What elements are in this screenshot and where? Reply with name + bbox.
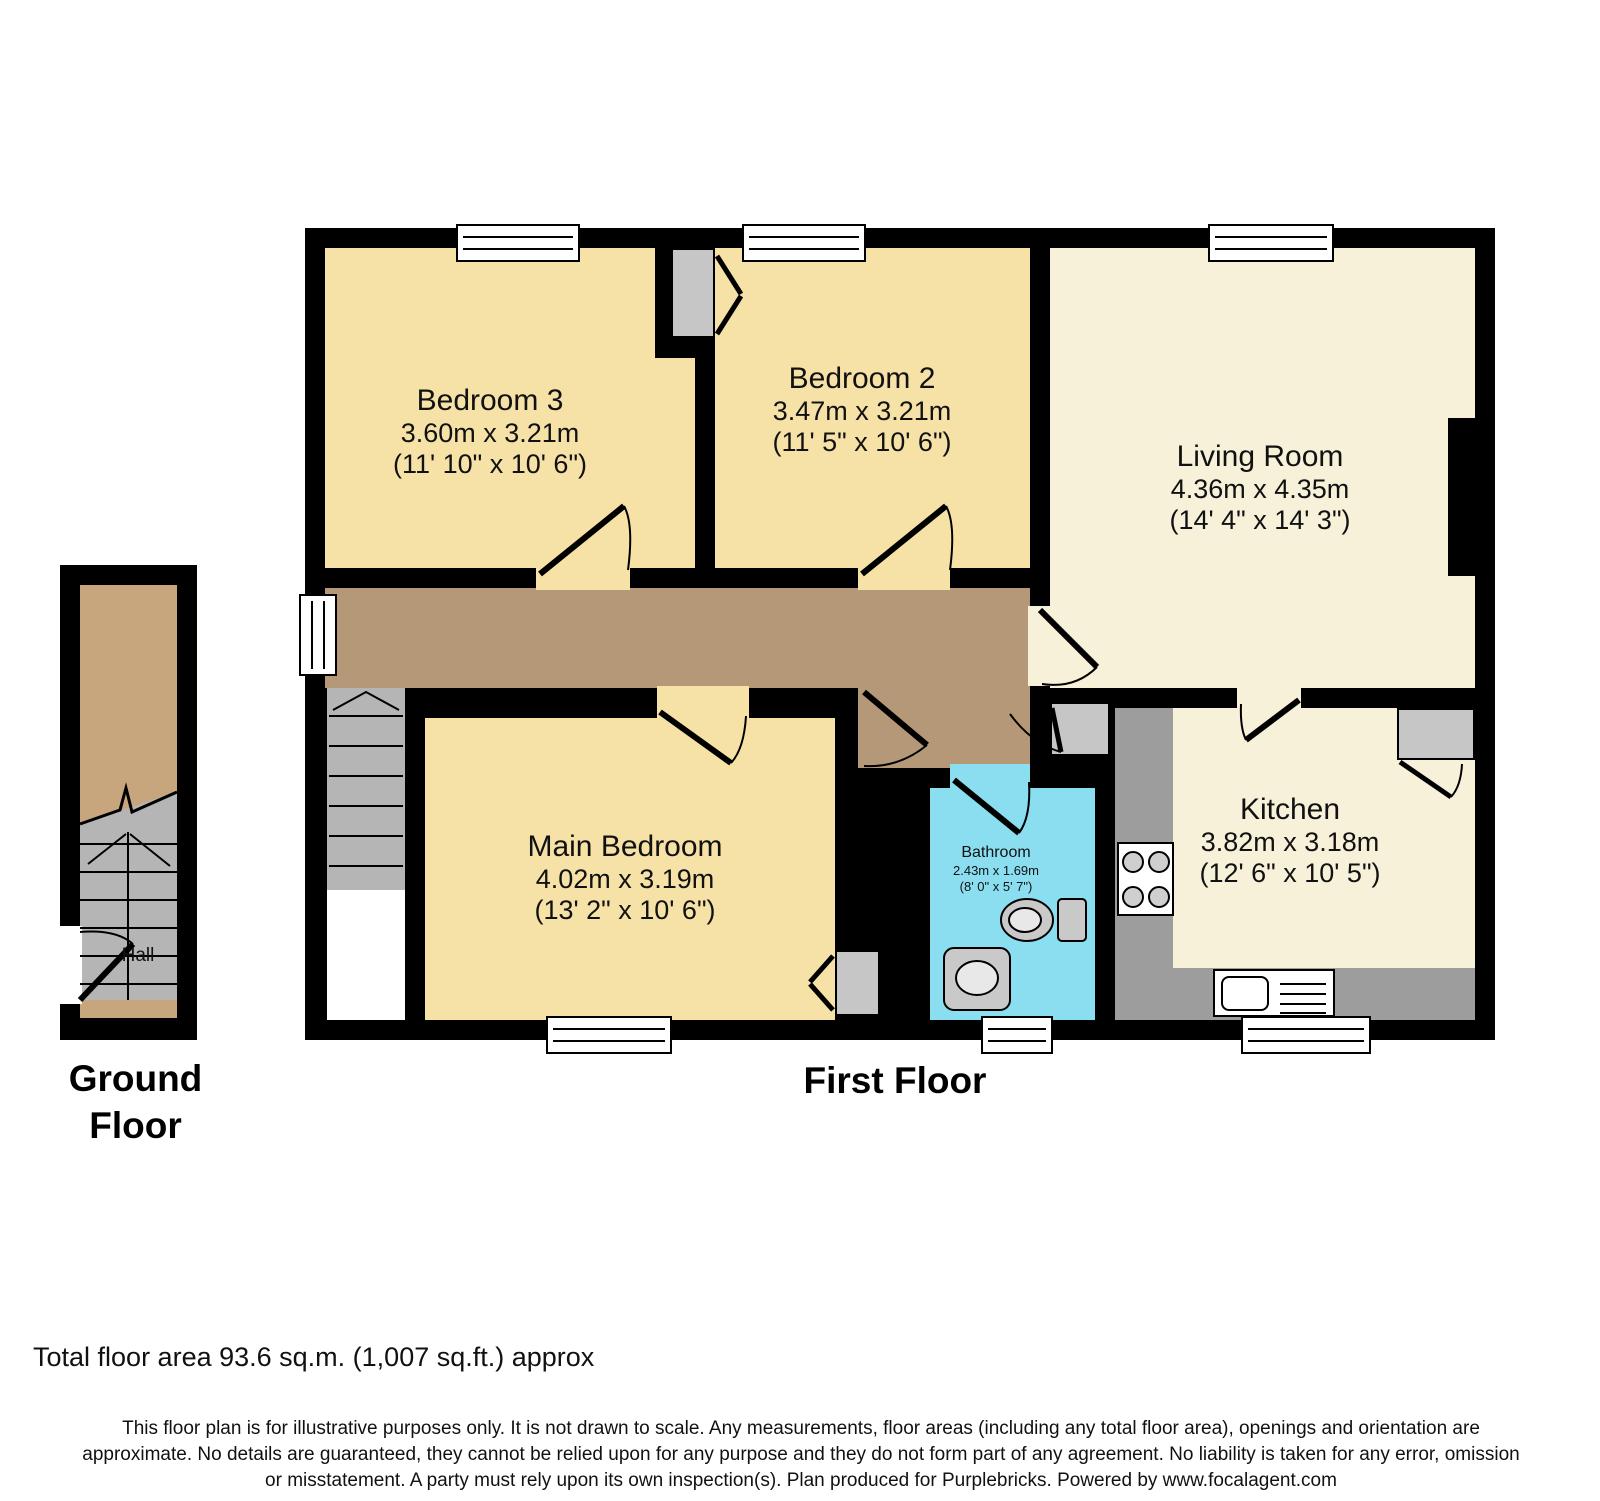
disclaimer-line-2: approximate. No details are guaranteed, … — [55, 1442, 1547, 1468]
room-bathroom — [930, 788, 1095, 1020]
hall-label: Hall — [103, 945, 173, 967]
first-floor-title: First Floor — [700, 1057, 1090, 1104]
bedroom3-window — [456, 224, 580, 262]
living-door-opening — [1028, 606, 1052, 686]
disclaimer-line-1: This floor plan is for illustrative purp… — [55, 1416, 1547, 1442]
room-bedroom3-extension — [655, 358, 695, 568]
room-dims-metric: 4.02m x 3.19m — [430, 864, 820, 895]
window-pane — [1215, 236, 1327, 250]
living-room-label: Living Room 4.36m x 4.35m (14' 4" x 14' … — [1085, 440, 1435, 536]
ground-floor-title: Ground Floor — [38, 1055, 233, 1149]
disclaimer-text: This floor plan is for illustrative purp… — [55, 1416, 1547, 1494]
first-floor-stairs — [327, 688, 405, 890]
stair-void — [327, 890, 405, 1020]
airing-cupboard — [1050, 702, 1110, 756]
room-name: Living Room — [1085, 440, 1435, 474]
room-dims-metric: 3.47m x 3.21m — [712, 396, 1012, 427]
lobby — [858, 688, 1030, 768]
room-dims-imperial: (12' 6" x 10' 5") — [1135, 858, 1445, 889]
bedroom2-window — [742, 224, 866, 262]
window-pane — [463, 236, 573, 250]
window-pane — [553, 1028, 665, 1042]
window-pane — [988, 1028, 1046, 1042]
floorplan-canvas: Bedroom 3 3.60m x 3.21m (11' 10" x 10' 6… — [0, 0, 1600, 1501]
landing-window — [299, 594, 337, 676]
room-dims-imperial: (11' 5" x 10' 6") — [712, 427, 1012, 458]
room-dims-metric: 2.43m x 1.69m — [920, 863, 1072, 879]
room-dims-imperial: (14' 4" x 14' 3") — [1085, 505, 1435, 536]
room-name: Bedroom 2 — [712, 362, 1012, 396]
main-bedroom-window — [546, 1016, 672, 1054]
living-window — [1208, 224, 1334, 262]
kitchen-label: Kitchen 3.82m x 3.18m (12' 6" x 10' 5") — [1135, 793, 1445, 889]
window-pane — [311, 601, 325, 669]
bathroom-window — [981, 1016, 1053, 1054]
living-chimney-breast — [1448, 418, 1475, 576]
main-bedroom-door-opening — [657, 686, 749, 720]
room-name: Main Bedroom — [430, 830, 820, 864]
kitchen-door-opening — [1237, 684, 1301, 710]
ground-floor-stairs — [80, 790, 177, 1000]
room-dims-metric: 3.82m x 3.18m — [1135, 827, 1445, 858]
room-dims-imperial: (11' 10" x 10' 6") — [340, 449, 640, 480]
main-bedroom-label: Main Bedroom 4.02m x 3.19m (13' 2" x 10'… — [430, 830, 820, 926]
room-dims-metric: 4.36m x 4.35m — [1085, 474, 1435, 505]
disclaimer-line-3: or misstatement. A party must rely upon … — [55, 1468, 1547, 1494]
room-name: Kitchen — [1135, 793, 1445, 827]
bathroom-door-opening — [950, 764, 1030, 790]
total-floor-area: Total floor area 93.6 sq.m. (1,007 sq.ft… — [33, 1342, 594, 1373]
room-dims-imperial: (8' 0" x 5' 7") — [920, 879, 1072, 895]
bedroom2-door-opening — [858, 566, 950, 590]
bedroom3-label: Bedroom 3 3.60m x 3.21m (11' 10" x 10' 6… — [340, 384, 640, 480]
room-dims-metric: 3.60m x 3.21m — [340, 418, 640, 449]
room-name: Hall — [103, 945, 173, 967]
kitchen-counter-bottom — [1173, 968, 1475, 1020]
room-name: Bathroom — [920, 843, 1072, 863]
hall-door-opening — [56, 926, 82, 1004]
room-dims-imperial: (13' 2" x 10' 6") — [430, 895, 820, 926]
window-pane — [1248, 1028, 1364, 1042]
bathroom-label: Bathroom 2.43m x 1.69m (8' 0" x 5' 7") — [920, 843, 1072, 895]
room-name: Bedroom 3 — [340, 384, 640, 418]
bedroom3-door-opening — [536, 566, 630, 590]
bedroom2-closet — [671, 248, 715, 338]
landing — [325, 588, 1030, 688]
kitchen-window — [1241, 1016, 1371, 1054]
bedroom2-label: Bedroom 2 3.47m x 3.21m (11' 5" x 10' 6"… — [712, 362, 1012, 458]
kitchen-cupboard — [1397, 708, 1475, 760]
window-pane — [749, 236, 859, 250]
main-bedroom-wardrobe — [835, 950, 880, 1016]
